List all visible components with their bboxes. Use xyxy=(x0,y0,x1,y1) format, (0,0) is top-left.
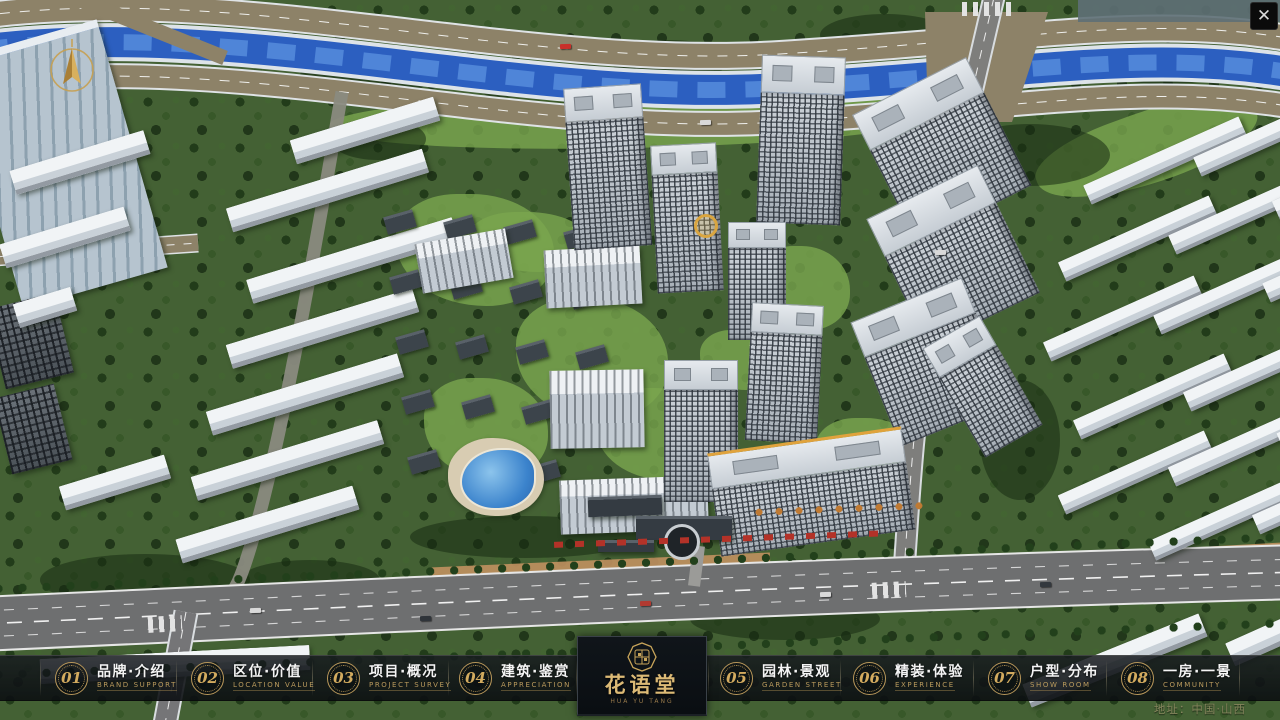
nav-label-zh: 一房·一景 xyxy=(1163,665,1232,679)
number-badge: 03 xyxy=(327,662,360,695)
navbar-separator xyxy=(312,660,313,696)
nav-item-project[interactable]: 03 项目·概况PROJECT SURVEY xyxy=(327,656,451,700)
close-icon: ✕ xyxy=(1257,6,1271,25)
close-button[interactable]: ✕ xyxy=(1250,2,1278,30)
aerial-map-viewport[interactable] xyxy=(0,0,1280,720)
gold-garden-feature xyxy=(694,214,718,238)
tower-facade xyxy=(756,93,844,226)
mid-rise-building xyxy=(544,246,643,309)
nav-label-en: BRAND SUPPORT xyxy=(97,682,177,691)
car xyxy=(935,250,946,255)
nav-label-zh: 品牌·介绍 xyxy=(97,665,177,679)
navbar-separator xyxy=(1106,660,1107,696)
nav-item-location[interactable]: 02 区位·价值LOCATION VALUE xyxy=(191,656,315,700)
navbar-separator xyxy=(973,660,974,696)
car xyxy=(420,616,431,621)
tower-facade xyxy=(745,332,823,444)
nav-item-brand[interactable]: 01 品牌·介绍BRAND SUPPORT xyxy=(55,656,177,700)
number-badge: 07 xyxy=(988,662,1021,695)
project-name: 花语堂 xyxy=(605,674,680,695)
entrance-hall-roof xyxy=(588,495,663,518)
tower-facade xyxy=(565,117,652,250)
high-rise-tower xyxy=(756,55,846,226)
crosswalk-left xyxy=(148,615,183,633)
car xyxy=(820,592,831,597)
nav-label-zh: 区位·价值 xyxy=(233,665,315,679)
tower-roof xyxy=(563,83,643,122)
nav-label-en: PROJECT SURVEY xyxy=(369,682,451,691)
compass-icon xyxy=(44,38,100,98)
tower-roof xyxy=(728,222,786,248)
nav-label-en: COMMUNITY xyxy=(1163,682,1221,691)
navbar-separator xyxy=(708,660,709,696)
nav-item-views[interactable]: 08 一房·一景COMMUNITY xyxy=(1121,656,1232,700)
nav-item-interior[interactable]: 06 精装·体验EXPERIENCE xyxy=(853,656,964,700)
number-badge: 06 xyxy=(853,662,886,695)
tower-roof xyxy=(650,142,717,175)
navbar-separator xyxy=(1239,660,1240,696)
nav-label-zh: 园林·景观 xyxy=(762,665,842,679)
nav-label-zh: 户型·分布 xyxy=(1030,665,1099,679)
nav-label-zh: 项目·概况 xyxy=(369,665,451,679)
nav-label-en: EXPERIENCE xyxy=(895,682,955,691)
crosswalk-right xyxy=(872,581,907,599)
crosswalk-top xyxy=(962,2,1014,16)
car xyxy=(250,608,261,613)
number-badge: 01 xyxy=(55,662,88,695)
nav-item-garden[interactable]: 05 园林·景观GARDEN STREET xyxy=(720,656,842,700)
nav-label-en: SHOW ROOM xyxy=(1030,682,1091,691)
seal-emblem-icon xyxy=(627,642,657,672)
tower-roof xyxy=(761,55,846,96)
navbar-separator xyxy=(840,660,841,696)
car xyxy=(640,601,651,606)
number-badge: 05 xyxy=(720,662,753,695)
nav-label-zh: 精装·体验 xyxy=(895,665,964,679)
project-name-latin: HUA YU TANG xyxy=(610,698,673,705)
navbar-separator xyxy=(176,660,177,696)
car xyxy=(1040,582,1051,587)
mid-rise-building xyxy=(549,369,644,449)
nav-label-en: LOCATION VALUE xyxy=(233,682,315,691)
number-badge: 02 xyxy=(191,662,224,695)
logo-panel[interactable]: 花语堂 HUA YU TANG xyxy=(577,636,707,716)
navbar-separator xyxy=(448,660,449,696)
nav-item-architecture[interactable]: 04 建筑·鉴赏APPRECIATION xyxy=(459,656,571,700)
address-text: 地址：中国·山西 xyxy=(1154,701,1246,717)
presentation-app: ✕ 01 品牌·介绍BRAND SUPPORT 02 区位·价值LOCATION… xyxy=(0,0,1280,720)
tower-roof xyxy=(664,360,738,390)
nav-label-en: APPRECIATION xyxy=(501,682,571,691)
high-rise-tower xyxy=(563,83,652,250)
nav-label-zh: 建筑·鉴赏 xyxy=(501,665,571,679)
nav-label-en: GARDEN STREET xyxy=(762,682,842,691)
high-rise-tower xyxy=(745,302,824,444)
navbar-separator xyxy=(40,660,41,696)
car xyxy=(560,44,571,49)
swimming-pool xyxy=(460,448,536,510)
number-badge: 08 xyxy=(1121,662,1154,695)
tower-roof xyxy=(750,302,823,336)
number-badge: 04 xyxy=(459,662,492,695)
nav-item-floorplan[interactable]: 07 户型·分布SHOW ROOM xyxy=(988,656,1099,700)
car xyxy=(700,120,711,125)
